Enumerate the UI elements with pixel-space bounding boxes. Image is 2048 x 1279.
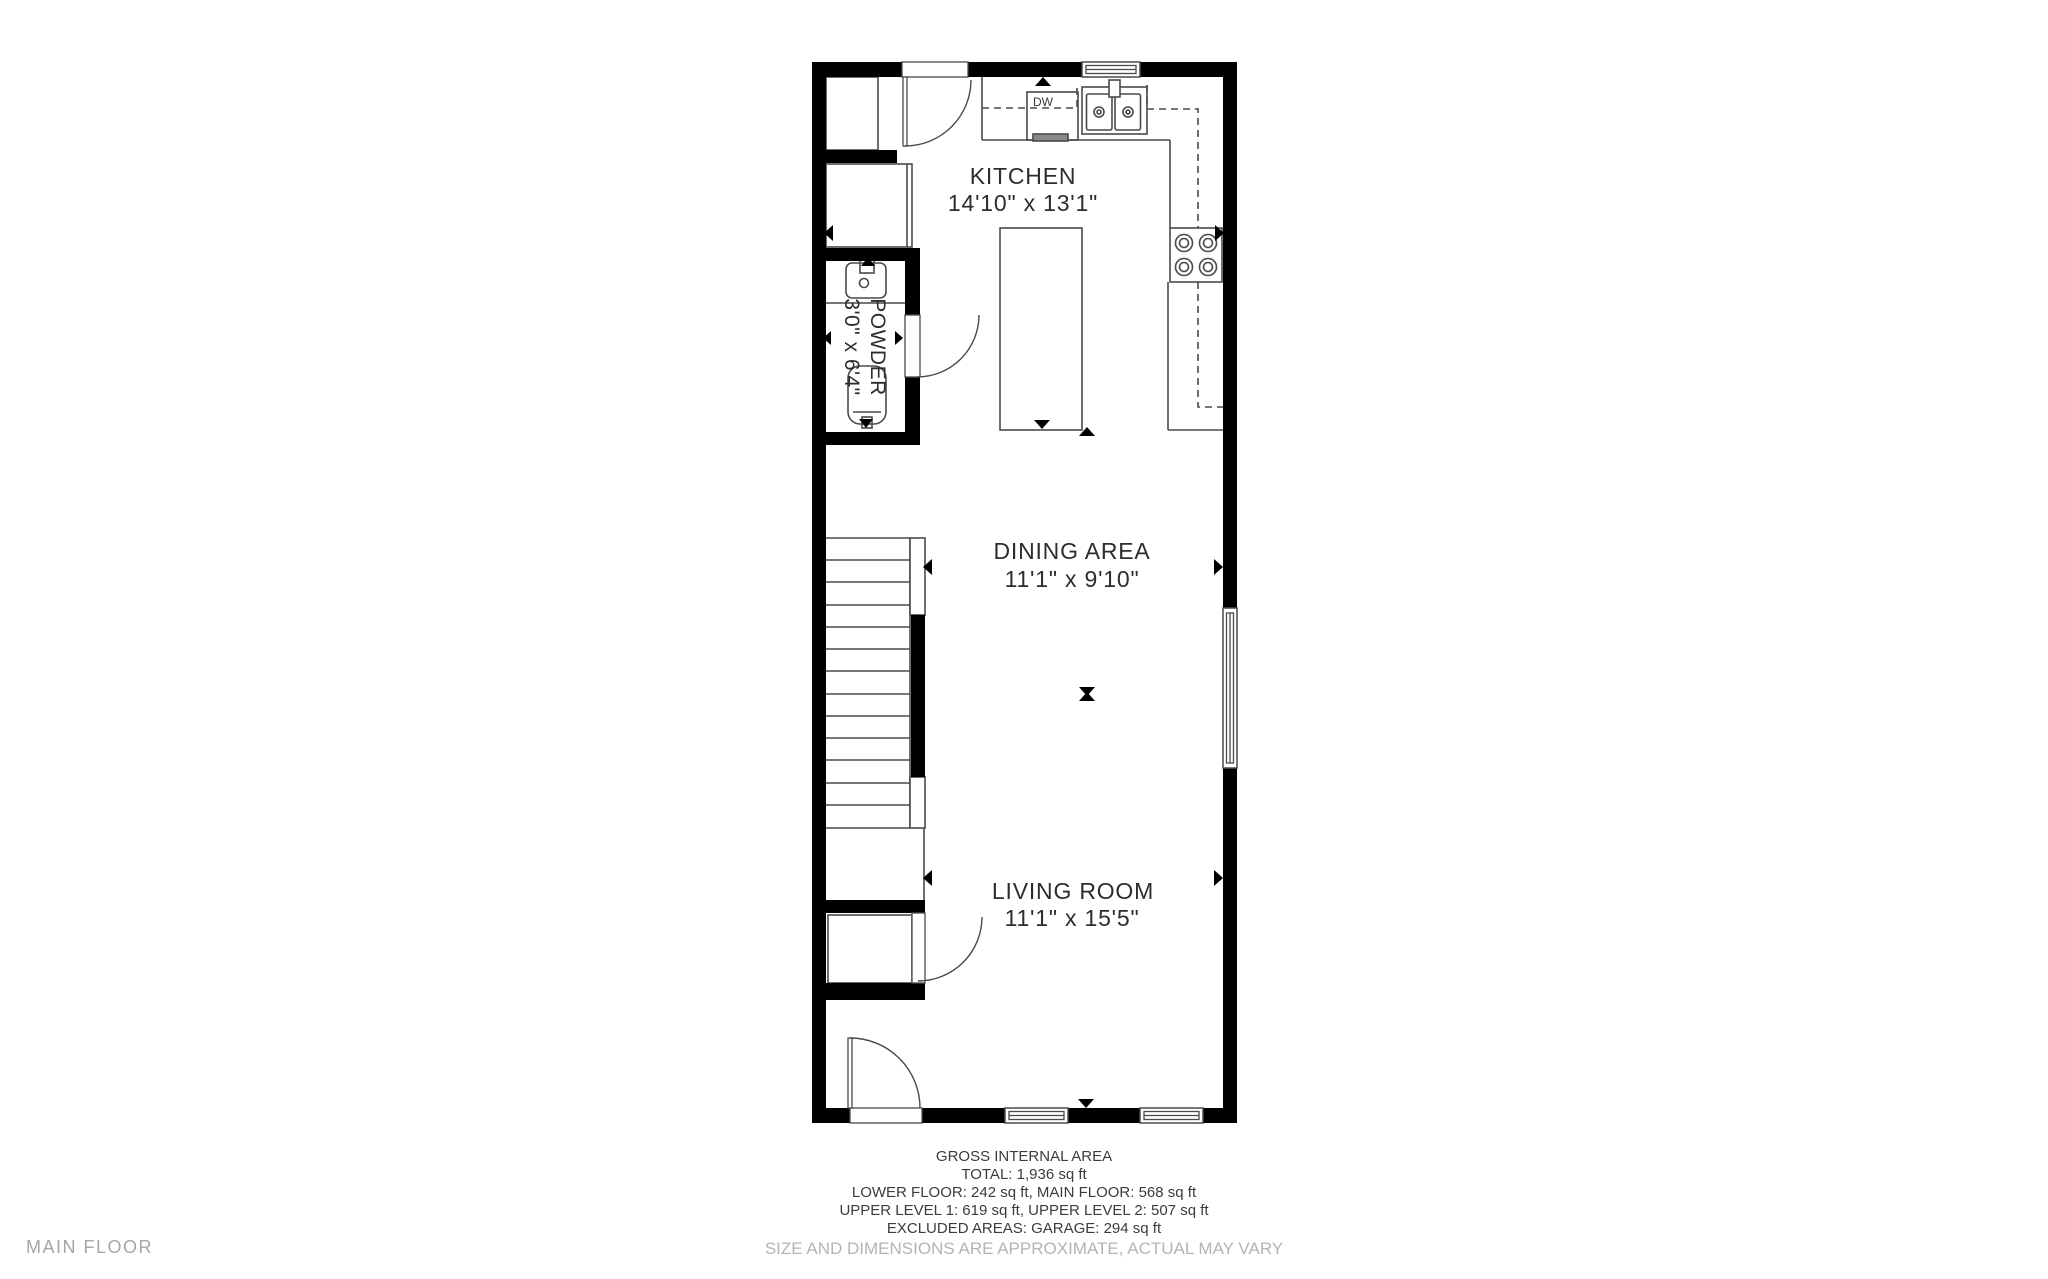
stair-treads [826, 538, 910, 828]
stairs [826, 538, 925, 983]
kitchen-island [1000, 228, 1082, 430]
wall-right [1223, 62, 1237, 1123]
dimension-arrows [823, 77, 1224, 1108]
window-bottom-left [1005, 1108, 1068, 1123]
living-room-label: LIVING ROOM [992, 878, 1154, 904]
outer-walls [812, 62, 1237, 1123]
area-summary-total: TOTAL: 1,936 sq ft [0, 1166, 2048, 1184]
wall-top [812, 62, 1237, 77]
kitchen-counter-right [1168, 282, 1223, 430]
wall-left [812, 62, 826, 1123]
entry-closet [826, 77, 878, 150]
window-right [1223, 608, 1237, 768]
arrow-up-icon [1035, 77, 1051, 86]
refrigerator-icon [826, 164, 912, 247]
powder-door [905, 315, 979, 377]
area-summary: GROSS INTERNAL AREA TOTAL: 1,936 sq ft L… [0, 1148, 2048, 1258]
kitchen-entry-door [902, 62, 971, 146]
area-summary-title: GROSS INTERNAL AREA [0, 1148, 2048, 1166]
window-bottom-right [1140, 1108, 1203, 1123]
understairs-closet [828, 915, 912, 983]
size-disclaimer: SIZE AND DIMENSIONS ARE APPROXIMATE, ACT… [0, 1239, 2048, 1258]
window-top [1082, 62, 1140, 77]
floor-plan-drawing: KITCHEN 14'10" x 13'1" POWDER 3'0" x 6'4… [0, 0, 2048, 1279]
powder-dimensions: 3'0" x 6'4" [840, 298, 863, 395]
stair-rail-upper [910, 538, 925, 615]
kitchen-dimensions: 14'10" x 13'1" [948, 190, 1098, 216]
arrow-right-icon [1214, 870, 1223, 886]
interior-walls [812, 150, 925, 1000]
powder-label: POWDER [866, 298, 889, 396]
arrow-down-icon [1034, 420, 1050, 429]
arrow-right-icon [895, 331, 903, 345]
powder-room-fixtures [826, 257, 905, 428]
area-summary-floors: LOWER FLOOR: 242 sq ft, MAIN FLOOR: 568 … [0, 1184, 2048, 1202]
stair-rail-lower [910, 777, 925, 828]
area-summary-excluded: EXCLUDED AREAS: GARAGE: 294 sq ft [0, 1220, 2048, 1238]
stair-guard-wall [911, 615, 925, 777]
dining-area-dimensions: 11'1" x 9'10" [1005, 566, 1140, 592]
floor-name-label: MAIN FLOOR [26, 1237, 153, 1258]
living-room-dimensions: 11'1" x 15'5" [1005, 905, 1140, 931]
windows [1005, 62, 1237, 1123]
floor-plan-page: KITCHEN 14'10" x 13'1" POWDER 3'0" x 6'4… [0, 0, 2048, 1279]
understairs-closet-door [912, 913, 982, 983]
stove-icon [1170, 228, 1222, 282]
kitchen-label: KITCHEN [970, 163, 1077, 189]
dining-area-label: DINING AREA [993, 538, 1150, 564]
arrow-up-icon [1079, 692, 1095, 701]
arrow-right-icon [1214, 559, 1223, 575]
dishwasher-label: DW [1033, 95, 1054, 109]
arrow-down-icon [1078, 1099, 1094, 1108]
front-door [848, 1038, 922, 1123]
area-summary-upper-levels: UPPER LEVEL 1: 619 sq ft, UPPER LEVEL 2:… [0, 1202, 2048, 1220]
kitchen-sink-icon [1082, 80, 1147, 134]
